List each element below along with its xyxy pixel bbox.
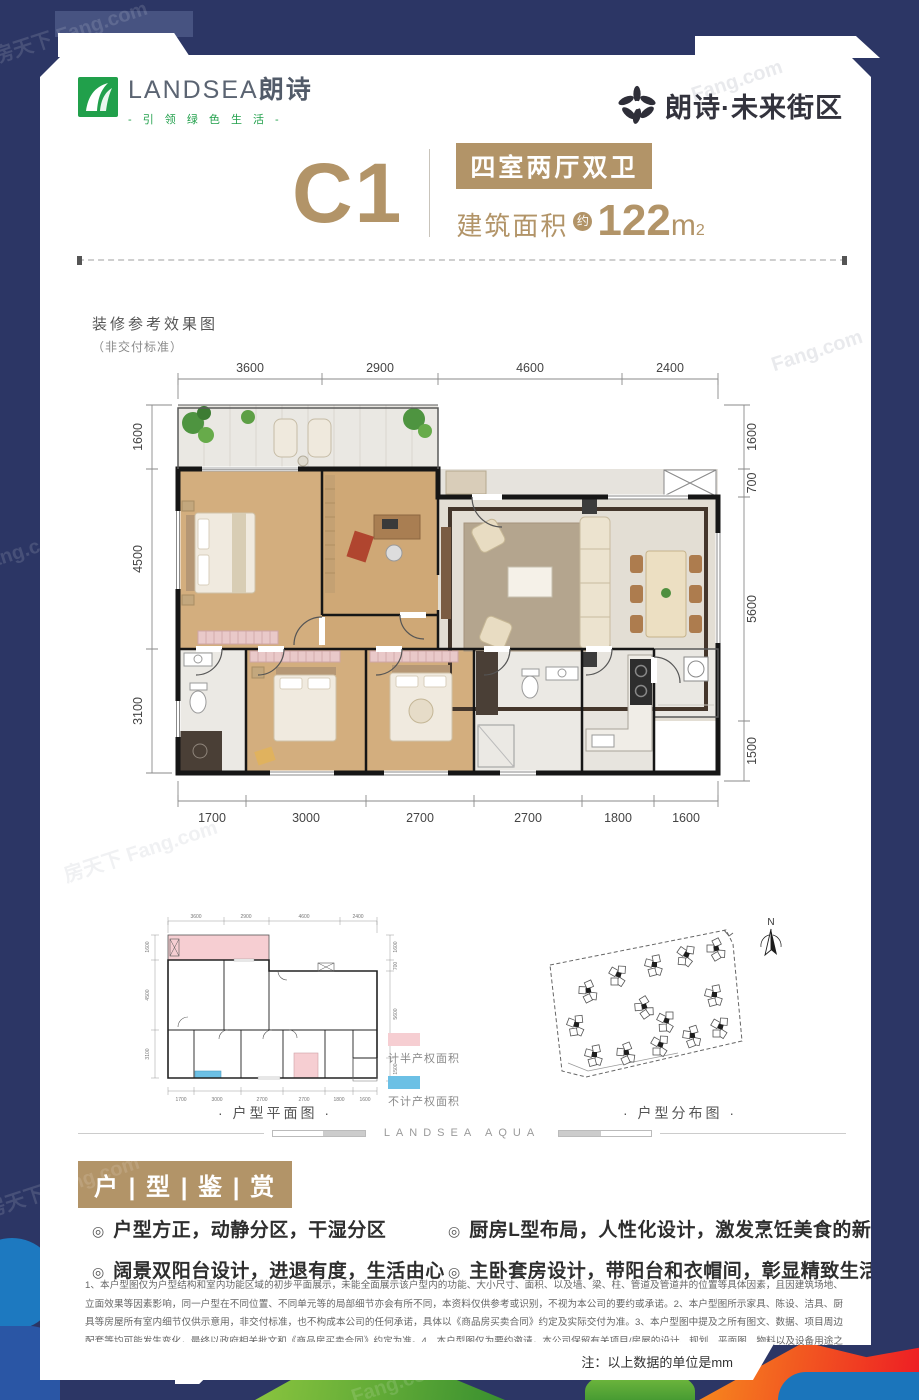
- mini-dim: 3100: [145, 1048, 151, 1059]
- unit-summary: 四室两厅双卫 建筑面积 约 122 m 2: [456, 143, 704, 243]
- divider-deco-right: [558, 1130, 652, 1137]
- dim-bottom-1: 1700: [198, 811, 226, 825]
- siteplan-caption: · 户型分布图 ·: [580, 1103, 780, 1123]
- floor-plan: 3600 2900 4600 2400 1600 4500 3100: [120, 355, 780, 885]
- bullet-icon: ◎: [448, 1223, 460, 1240]
- north-label: N: [767, 917, 774, 928]
- dim-right-4: 1500: [745, 737, 759, 765]
- brand-landsea-text: LANDSEA朗诗 - 引 领 绿 色 生 活 -: [128, 77, 313, 127]
- mini-dim: 4500: [145, 989, 151, 1000]
- bullet-text: 户型方正，动静分区，干湿分区: [113, 1215, 386, 1242]
- flyer-page: LANDSEA朗诗 - 引 领 绿 色 生 活 - 朗诗·未来街区: [40, 55, 871, 1345]
- area-value: 122: [597, 199, 670, 243]
- project-star-icon: [617, 83, 657, 127]
- dim-left-3: 3100: [131, 697, 145, 725]
- dim-top-4: 2400: [656, 361, 684, 375]
- dashed-divider: [78, 259, 846, 261]
- section-divider: LANDSEA AQUA: [78, 1127, 846, 1139]
- legend-item-blue: 不计产权面积: [388, 1076, 460, 1109]
- divider-deco-left: [272, 1130, 366, 1137]
- miniplan-caption: · 户型平面图 ·: [160, 1103, 390, 1123]
- divider-line: [78, 1133, 264, 1134]
- bullet-text: 厨房L型布局，人性化设计，激发烹饪美食的新鲜灵感: [469, 1215, 919, 1242]
- dim-top-3: 4600: [516, 361, 544, 375]
- dim-left-2: 4500: [131, 545, 145, 573]
- dim-top-1: 3600: [236, 361, 264, 375]
- section-badge: 户 | 型 | 鉴 | 赏: [78, 1161, 292, 1208]
- mini-floor-plan: 3600 2900 4600 2400 1600 4500 3100: [122, 905, 422, 1110]
- title-divider: [429, 149, 430, 237]
- sheet-tab-top-left: [58, 33, 190, 57]
- mini-dim: 1600: [393, 941, 399, 952]
- mini-dim: 2400: [352, 914, 363, 920]
- divider-text: LANDSEA AQUA: [384, 1127, 540, 1139]
- divider-line: [660, 1133, 846, 1134]
- landsea-logo-icon: [78, 77, 118, 117]
- brand-slogan: - 引 领 绿 色 生 活 -: [128, 111, 313, 127]
- mini-dim: 2900: [240, 914, 251, 920]
- mini-dim: 700: [393, 962, 399, 971]
- mini-dim: 1600: [145, 941, 151, 952]
- dim-right-1: 1600: [745, 423, 759, 451]
- bullet-icon: ◎: [92, 1223, 104, 1240]
- brand-project: 朗诗·未来街区: [617, 83, 843, 127]
- render-note: 装修参考效果图 （非交付标准）: [92, 313, 218, 355]
- brand-name-cn: 朗诗: [259, 77, 313, 105]
- dim-bottom-2: 3000: [292, 811, 320, 825]
- approx-circle: 约: [573, 212, 592, 231]
- area-row: 建筑面积 约 122 m 2: [456, 199, 704, 243]
- bullet-item: ◎ 厨房L型布局，人性化设计，激发烹饪美食的新鲜灵感: [448, 1215, 848, 1242]
- unit-title-block: C1 四室两厅双卫 建筑面积 约 122 m 2: [292, 143, 705, 243]
- brand-landsea: LANDSEA朗诗 - 引 领 绿 色 生 活 -: [78, 77, 313, 127]
- brand-name-en: LANDSEA: [128, 77, 259, 105]
- render-note-sub: （非交付标准）: [92, 338, 218, 355]
- mini-dim: 3600: [190, 914, 201, 920]
- render-note-title: 装修参考效果图: [92, 313, 218, 334]
- sheet-tab-top-right: [695, 36, 880, 58]
- legend-label-blue: 不计产权面积: [388, 1093, 460, 1109]
- dim-bottom-4: 2700: [514, 811, 542, 825]
- decor-blue-right: [778, 1372, 919, 1400]
- dim-top-2: 2900: [366, 361, 394, 375]
- dim-right-3: 5600: [745, 595, 759, 623]
- mini-dim: 5600: [393, 1008, 399, 1019]
- poster-stage: LANDSEA朗诗 - 引 领 绿 色 生 活 - 朗诗·未来街区: [0, 0, 919, 1400]
- unit-code: C1: [292, 151, 403, 235]
- dim-bottom-3: 2700: [406, 811, 434, 825]
- area-legend: 计半产权面积 不计产权面积: [388, 1033, 460, 1119]
- footnote-strip: 注：以上数据的单位是mm: [40, 1342, 775, 1380]
- dim-bottom-5: 1800: [604, 811, 632, 825]
- legend-swatch-blue: [388, 1076, 420, 1089]
- north-arrow-icon: N: [761, 917, 781, 955]
- dim-left-1: 1600: [131, 423, 145, 451]
- legend-swatch-pink: [388, 1033, 420, 1046]
- footnote-text: 注：以上数据的单位是mm: [581, 1352, 733, 1371]
- dim-right-2: 700: [745, 473, 759, 494]
- site-plan: N: [528, 903, 808, 1108]
- legend-item-pink: 计半产权面积: [388, 1033, 460, 1066]
- area-unit: m: [671, 209, 696, 243]
- project-name: 朗诗·未来街区: [665, 86, 843, 125]
- bullet-item: ◎ 户型方正，动静分区，干湿分区: [92, 1215, 452, 1242]
- mini-dim: 4600: [298, 914, 309, 920]
- dim-bottom-6: 1600: [672, 811, 700, 825]
- area-sup: 2: [696, 222, 705, 240]
- area-label: 建筑面积: [456, 206, 568, 243]
- legend-label-pink: 计半产权面积: [388, 1050, 460, 1066]
- layout-badge: 四室两厅双卫: [456, 143, 652, 189]
